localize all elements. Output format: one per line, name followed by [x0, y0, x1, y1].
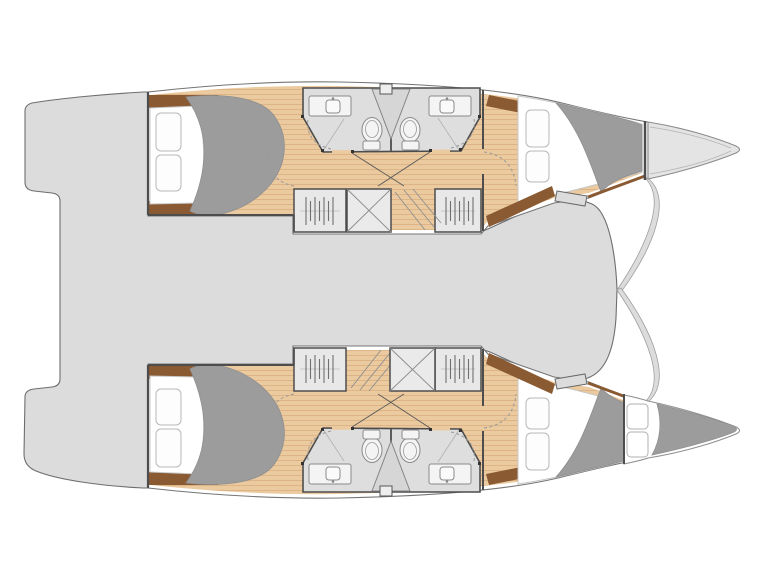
storage-locker	[390, 348, 435, 391]
pillow	[627, 404, 648, 429]
catamaran-floorplan-image	[0, 0, 768, 576]
pillow	[627, 432, 648, 457]
storage-locker	[347, 189, 391, 232]
